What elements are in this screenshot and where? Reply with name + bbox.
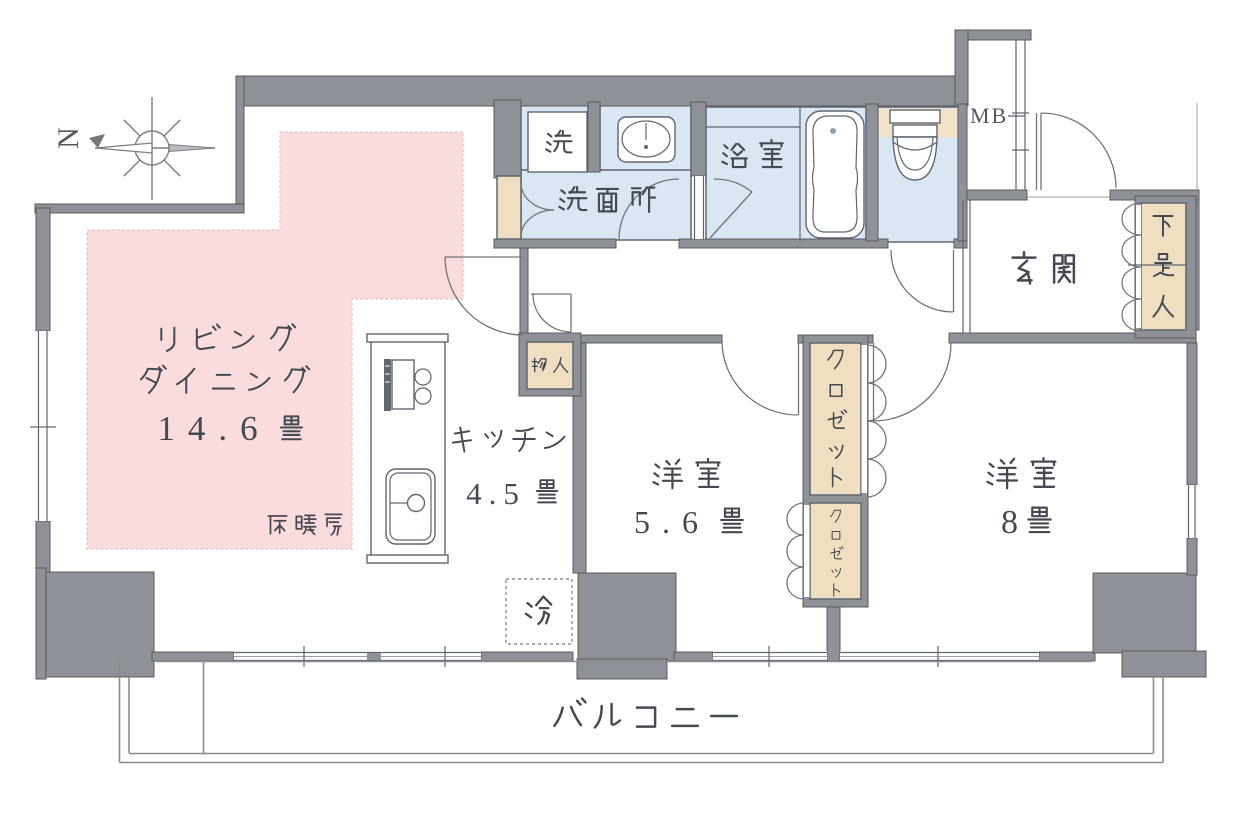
svg-text:N: N [52, 127, 85, 149]
svg-text:4.5: 4.5 [466, 476, 526, 511]
svg-text:14.6: 14.6 [157, 409, 270, 448]
svg-text:5.6: 5.6 [634, 504, 710, 540]
svg-text:MB: MB [970, 103, 1008, 128]
svg-text:8: 8 [1001, 504, 1018, 541]
